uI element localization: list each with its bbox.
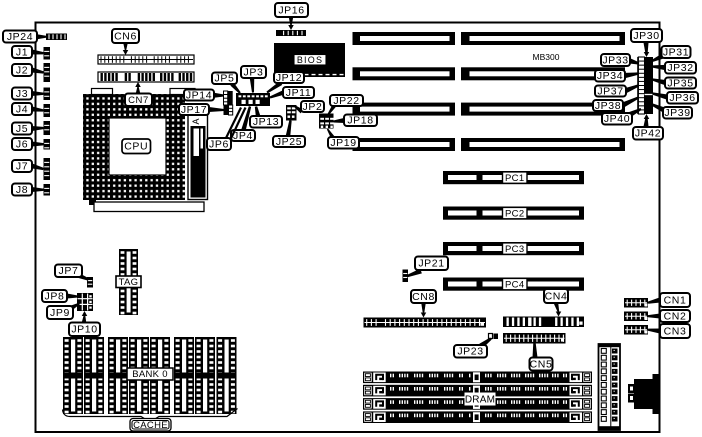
svg-text:JP2: JP2 <box>303 101 323 113</box>
svg-text:CN8: CN8 <box>412 291 435 303</box>
svg-text:JP16: JP16 <box>278 4 304 16</box>
svg-text:CN4: CN4 <box>545 290 568 302</box>
svg-text:J3: J3 <box>16 88 28 100</box>
svg-text:JP38: JP38 <box>595 100 621 112</box>
svg-text:JP40: JP40 <box>604 113 630 125</box>
svg-text:J8: J8 <box>16 184 28 196</box>
svg-text:J6: J6 <box>16 138 28 150</box>
svg-text:CN2: CN2 <box>664 310 687 322</box>
svg-text:PC2: PC2 <box>505 208 524 219</box>
svg-text:JP4: JP4 <box>233 130 253 142</box>
svg-text:JP39: JP39 <box>664 107 690 119</box>
svg-text:JP24: JP24 <box>7 31 33 43</box>
svg-text:CPU: CPU <box>124 141 148 153</box>
svg-text:JP7: JP7 <box>59 265 79 277</box>
svg-text:J7: J7 <box>16 160 28 172</box>
svg-text:CN5: CN5 <box>530 358 553 370</box>
svg-text:JP18: JP18 <box>347 115 373 127</box>
svg-text:BANK 0: BANK 0 <box>132 369 168 380</box>
svg-text:JP12: JP12 <box>276 72 302 84</box>
svg-text:JP9: JP9 <box>50 307 70 319</box>
svg-text:CN1: CN1 <box>664 294 687 306</box>
svg-text:CN3: CN3 <box>664 325 687 337</box>
svg-text:JP5: JP5 <box>215 73 235 85</box>
svg-text:CN7: CN7 <box>128 95 149 106</box>
svg-text:CACHE: CACHE <box>133 420 168 431</box>
svg-text:JP32: JP32 <box>667 62 693 74</box>
svg-text:TAG: TAG <box>119 277 139 288</box>
svg-text:BIOS: BIOS <box>297 55 323 65</box>
svg-text:JP30: JP30 <box>633 30 659 42</box>
svg-text:J4: J4 <box>16 103 28 115</box>
svg-text:JP14: JP14 <box>186 89 212 101</box>
svg-text:JP35: JP35 <box>667 77 693 89</box>
svg-text:J2: J2 <box>16 64 28 76</box>
svg-text:JP17: JP17 <box>181 104 207 116</box>
svg-text:JP37: JP37 <box>597 85 623 97</box>
svg-text:JP42: JP42 <box>635 128 661 140</box>
svg-text:DRAM: DRAM <box>465 395 495 406</box>
svg-text:JP33: JP33 <box>602 54 628 66</box>
svg-text:MB300: MB300 <box>533 52 560 62</box>
svg-text:JP8: JP8 <box>45 290 65 302</box>
svg-text:PC4: PC4 <box>505 279 524 290</box>
svg-text:JP23: JP23 <box>457 346 483 358</box>
svg-text:JP36: JP36 <box>669 92 695 104</box>
svg-text:JP6: JP6 <box>209 138 229 150</box>
svg-text:CN6: CN6 <box>114 30 137 42</box>
svg-text:JP11: JP11 <box>286 87 312 99</box>
svg-text:JP19: JP19 <box>330 137 356 149</box>
svg-text:JP10: JP10 <box>71 324 97 336</box>
svg-text:JP34: JP34 <box>597 70 623 82</box>
svg-text:J5: J5 <box>16 123 28 135</box>
svg-text:JP22: JP22 <box>333 95 359 107</box>
svg-text:PC3: PC3 <box>505 244 524 255</box>
svg-text:A: A <box>191 118 201 124</box>
svg-text:JP31: JP31 <box>663 46 689 58</box>
svg-text:JP25: JP25 <box>276 136 302 148</box>
svg-text:PC1: PC1 <box>505 173 524 184</box>
svg-text:JP21: JP21 <box>418 258 444 270</box>
svg-text:JP13: JP13 <box>253 116 279 128</box>
svg-text:JP3: JP3 <box>244 66 264 78</box>
svg-text:J1: J1 <box>16 46 28 58</box>
